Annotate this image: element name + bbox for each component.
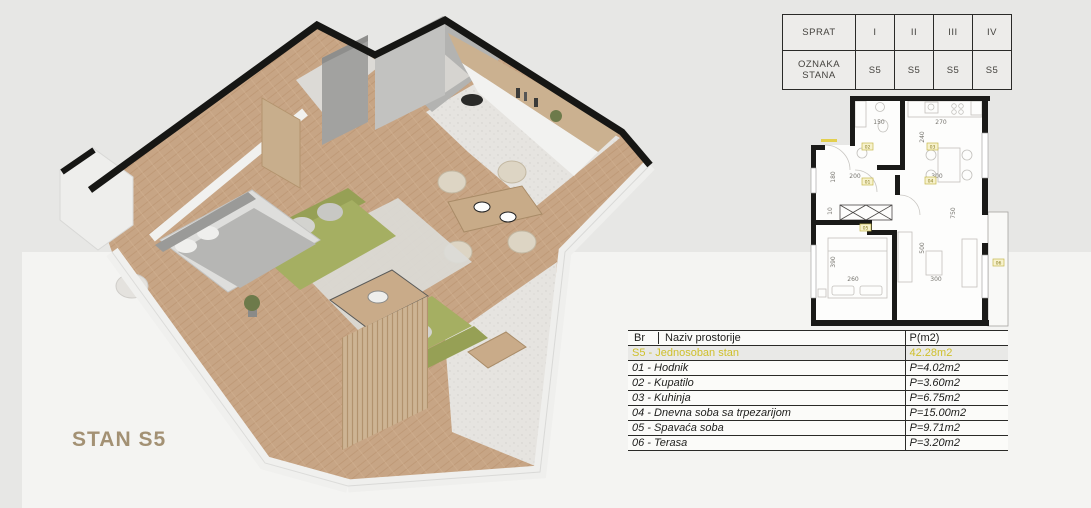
- svg-text:03: 03: [930, 144, 936, 150]
- floor-2: II: [895, 15, 934, 51]
- unit-2: S5: [895, 51, 934, 90]
- plan-terrace: [988, 212, 1008, 326]
- svg-text:02: 02: [865, 144, 871, 150]
- room-area: P=6.75m2: [905, 391, 1008, 406]
- room-row: 06 - Terasa P=3.20m2: [628, 436, 1008, 451]
- unit-row: OZNAKA STANA S5 S5 S5 S5: [783, 51, 1012, 90]
- svg-text:390: 390: [830, 256, 837, 268]
- svg-text:300: 300: [930, 276, 942, 283]
- svg-text:06: 06: [996, 260, 1002, 266]
- room-area: P=9.71m2: [905, 421, 1008, 436]
- badge-bathroom: 02: [862, 143, 873, 150]
- unit-1: S5: [856, 51, 895, 90]
- svg-text:200: 200: [849, 173, 861, 180]
- badge-hall: 01: [862, 178, 873, 185]
- room-area: P=3.60m2: [905, 376, 1008, 391]
- summary-label: S5 - Jednosoban stan: [628, 346, 905, 361]
- room-label: 06 - Terasa: [628, 436, 905, 451]
- room-row: 04 - Dnevna soba sa trpezarijom P=15.00m…: [628, 406, 1008, 421]
- unit-3: S5: [934, 51, 973, 90]
- floor-4: IV: [973, 15, 1012, 51]
- sprat-label: SPRAT: [783, 15, 856, 51]
- summary-row: S5 - Jednosoban stan 42.28m2: [628, 346, 1008, 361]
- svg-text:04: 04: [928, 178, 934, 184]
- svg-text:500: 500: [919, 242, 926, 254]
- badge-living: 04: [925, 177, 936, 184]
- room-label: 01 - Hodnik: [628, 361, 905, 376]
- room-label: 04 - Dnevna soba sa trpezarijom: [628, 406, 905, 421]
- badge-kitchen: 03: [927, 143, 938, 150]
- room-label: 05 - Spavaća soba: [628, 421, 905, 436]
- room-row: 02 - Kupatilo P=3.60m2: [628, 376, 1008, 391]
- floor-1: I: [856, 15, 895, 51]
- svg-text:750: 750: [950, 207, 957, 219]
- svg-text:10: 10: [827, 207, 834, 215]
- room-area: P=3.20m2: [905, 436, 1008, 451]
- apartment-title: STAN S5: [72, 428, 166, 452]
- room-row: 01 - Hodnik P=4.02m2: [628, 361, 1008, 376]
- oznaka-label: OZNAKA STANA: [783, 51, 856, 90]
- badge-terrace: 06: [993, 259, 1004, 266]
- floor-row: SPRAT I II III IV: [783, 15, 1012, 51]
- col-br: Br: [632, 332, 659, 344]
- svg-text:240: 240: [919, 131, 926, 143]
- floor-unit-table: SPRAT I II III IV OZNAKA STANA S5 S5 S5 …: [782, 14, 1012, 90]
- kitchen-plant: [550, 110, 562, 122]
- svg-text:150: 150: [873, 119, 885, 126]
- room-row: 05 - Spavaća soba P=9.71m2: [628, 421, 1008, 436]
- floor-3: III: [934, 15, 973, 51]
- svg-text:260: 260: [847, 276, 859, 283]
- room-area: P=4.02m2: [905, 361, 1008, 376]
- room-area: P=15.00m2: [905, 406, 1008, 421]
- svg-text:01: 01: [865, 179, 871, 185]
- kitchen-sink: [461, 94, 483, 106]
- col-area: P(m2): [905, 331, 1008, 346]
- floorplan-2d-schematic: 150 270 240 180 200 300 10 750 500 390 2…: [805, 93, 1015, 338]
- svg-text:270: 270: [935, 119, 947, 126]
- col-naziv: Naziv prostorije: [665, 332, 741, 344]
- room-row: 03 - Kuhinja P=6.75m2: [628, 391, 1008, 406]
- entry-marker: [821, 139, 837, 142]
- rooms-table-header: BrNaziv prostorije P(m2): [628, 331, 1008, 346]
- badge-bedroom: 05: [860, 224, 871, 231]
- plan-interior: [811, 96, 988, 326]
- summary-area: 42.28m2: [905, 346, 1008, 361]
- svg-text:180: 180: [830, 171, 837, 183]
- svg-text:05: 05: [863, 225, 869, 231]
- room-label: 03 - Kuhinja: [628, 391, 905, 406]
- rooms-area-table: BrNaziv prostorije P(m2) S5 - Jednosoban…: [628, 330, 1008, 451]
- unit-4: S5: [973, 51, 1012, 90]
- room-label: 02 - Kupatilo: [628, 376, 905, 391]
